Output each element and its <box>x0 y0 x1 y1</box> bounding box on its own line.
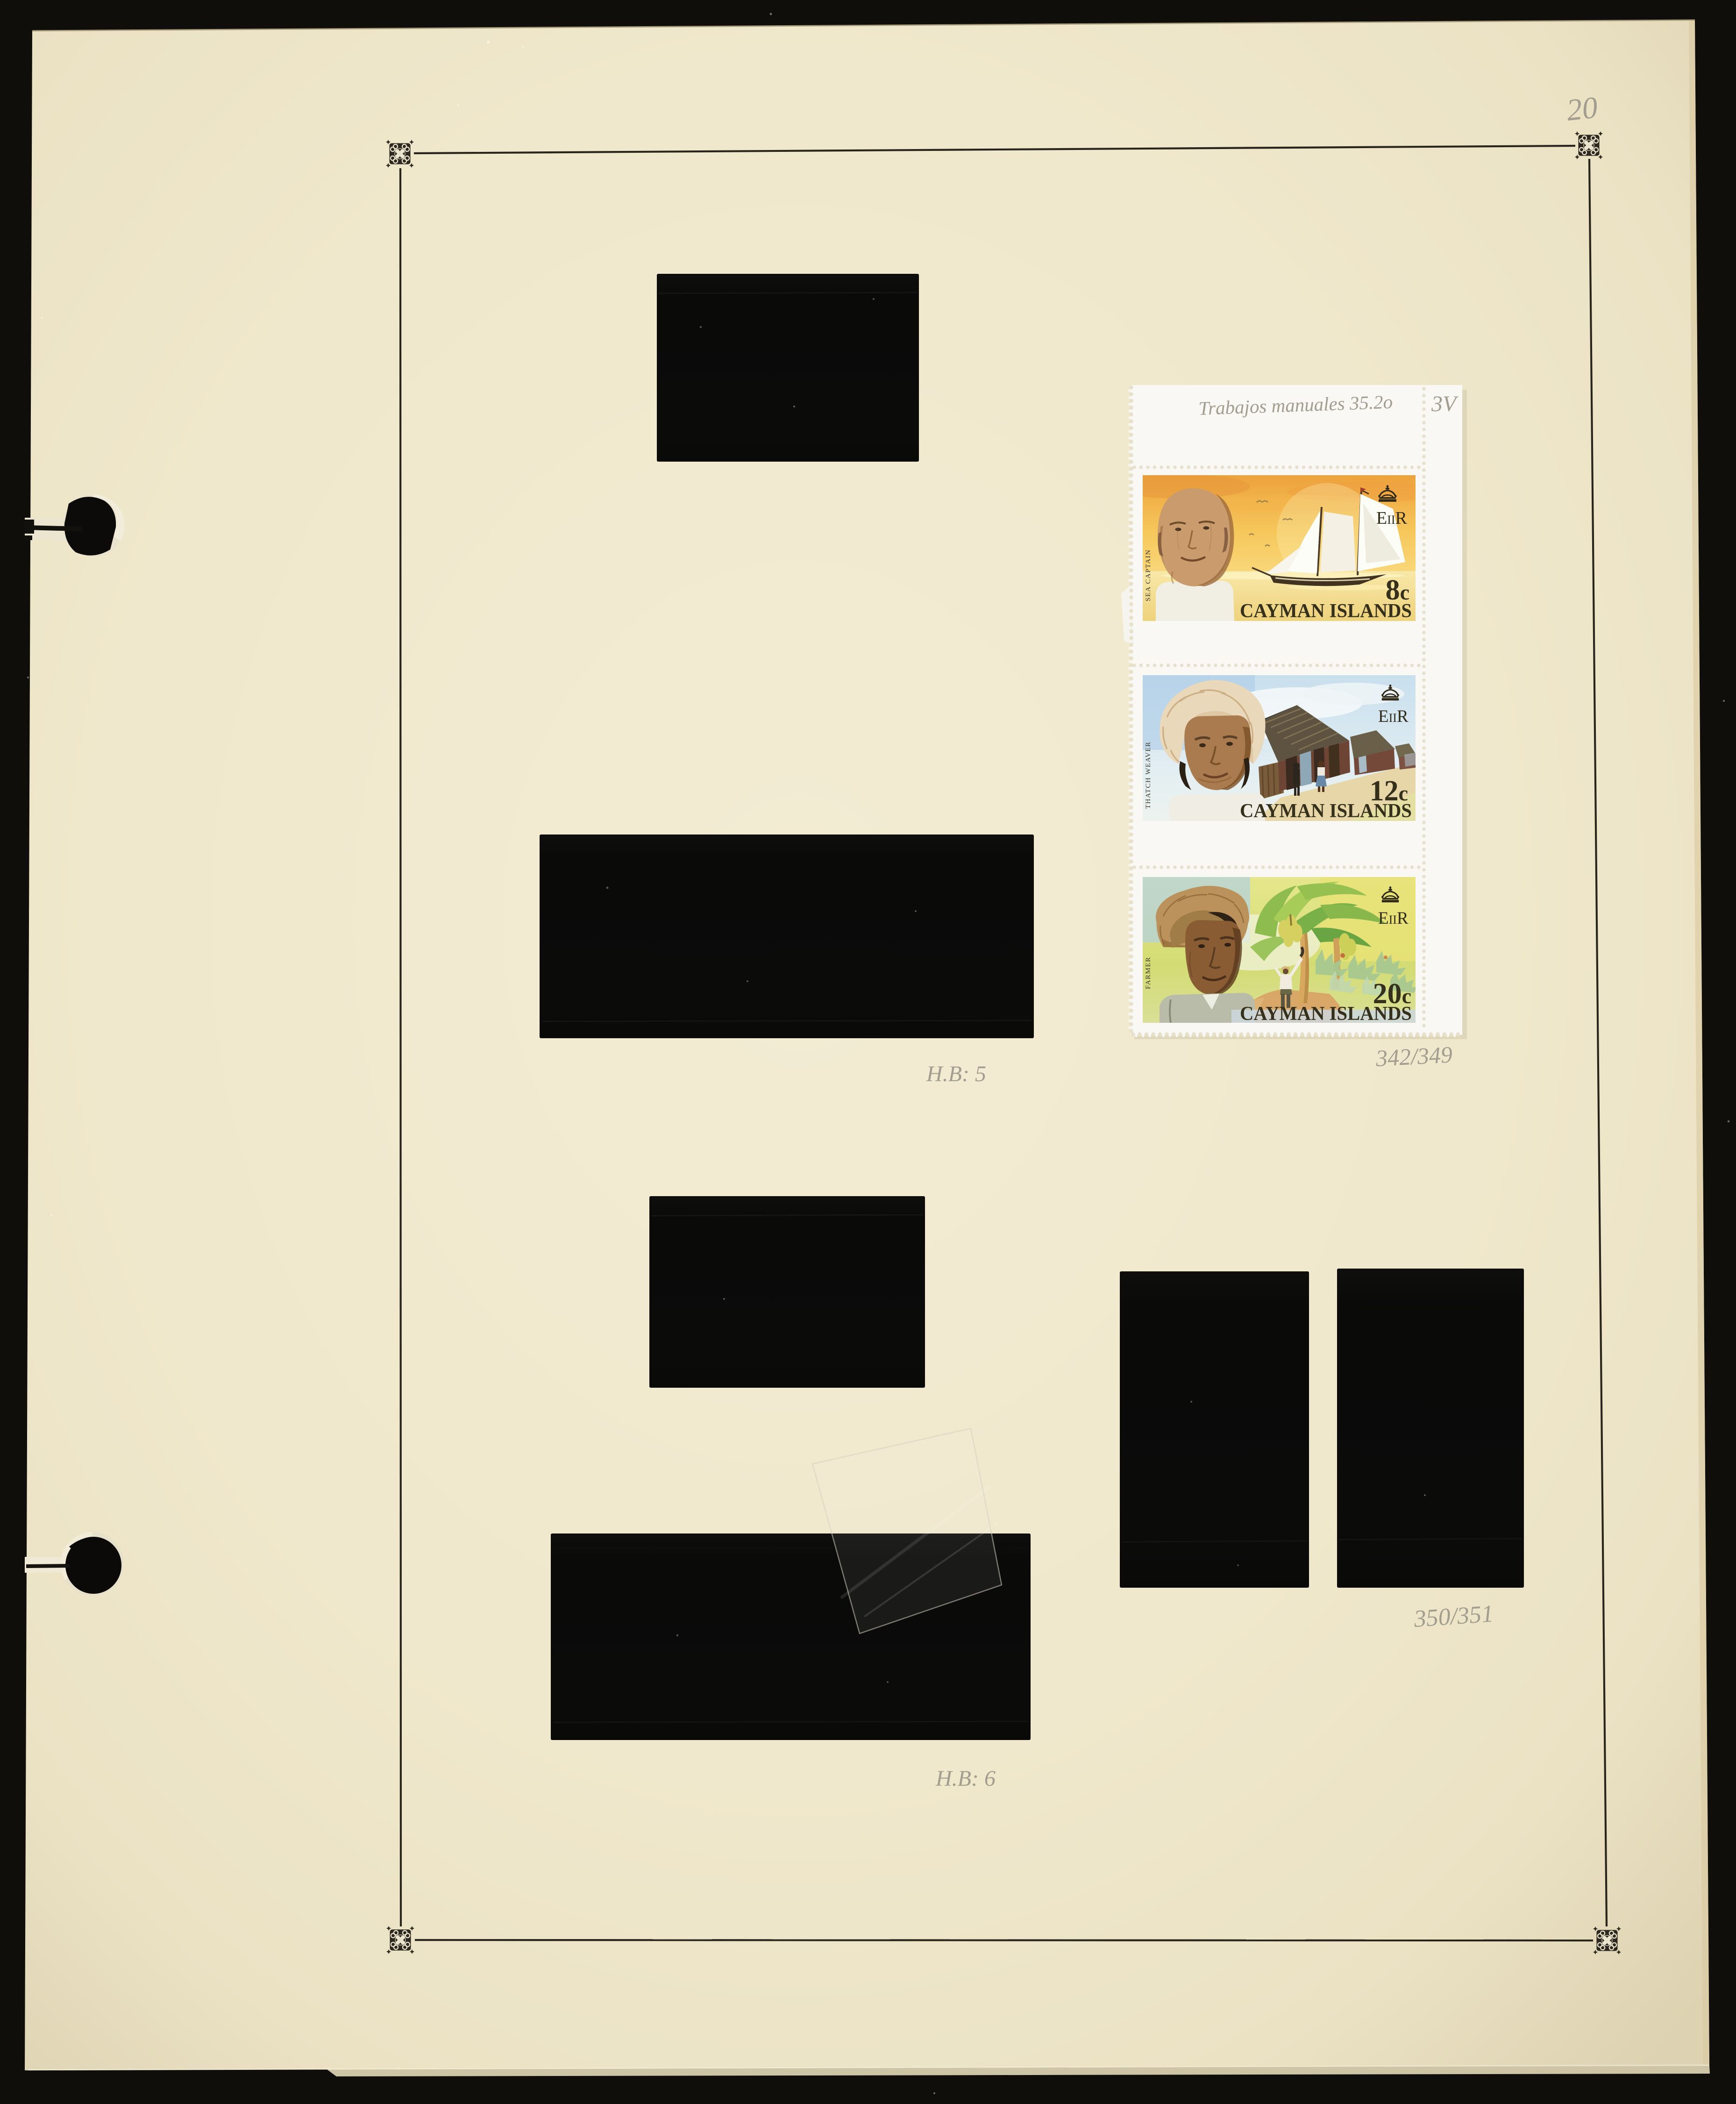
svg-text:CAYMAN ISLANDS: CAYMAN ISLANDS <box>1240 600 1412 622</box>
svg-text:THATCH WEAVER: THATCH WEAVER <box>1145 742 1152 809</box>
svg-text:350/351: 350/351 <box>1413 1600 1494 1633</box>
svg-text:342/349: 342/349 <box>1375 1041 1453 1071</box>
svg-text:20: 20 <box>1565 90 1599 127</box>
svg-text:3V: 3V <box>1431 392 1459 416</box>
svg-text:H.B: 5: H.B: 5 <box>926 1062 986 1086</box>
svg-text:CAYMAN ISLANDS: CAYMAN ISLANDS <box>1240 1003 1412 1025</box>
svg-text:SEA CAPTAIN: SEA CAPTAIN <box>1145 549 1152 601</box>
svg-text:CAYMAN ISLANDS: CAYMAN ISLANDS <box>1240 800 1412 822</box>
svg-text:H.B: 6: H.B: 6 <box>935 1766 996 1791</box>
svg-text:FARMER: FARMER <box>1145 956 1152 989</box>
